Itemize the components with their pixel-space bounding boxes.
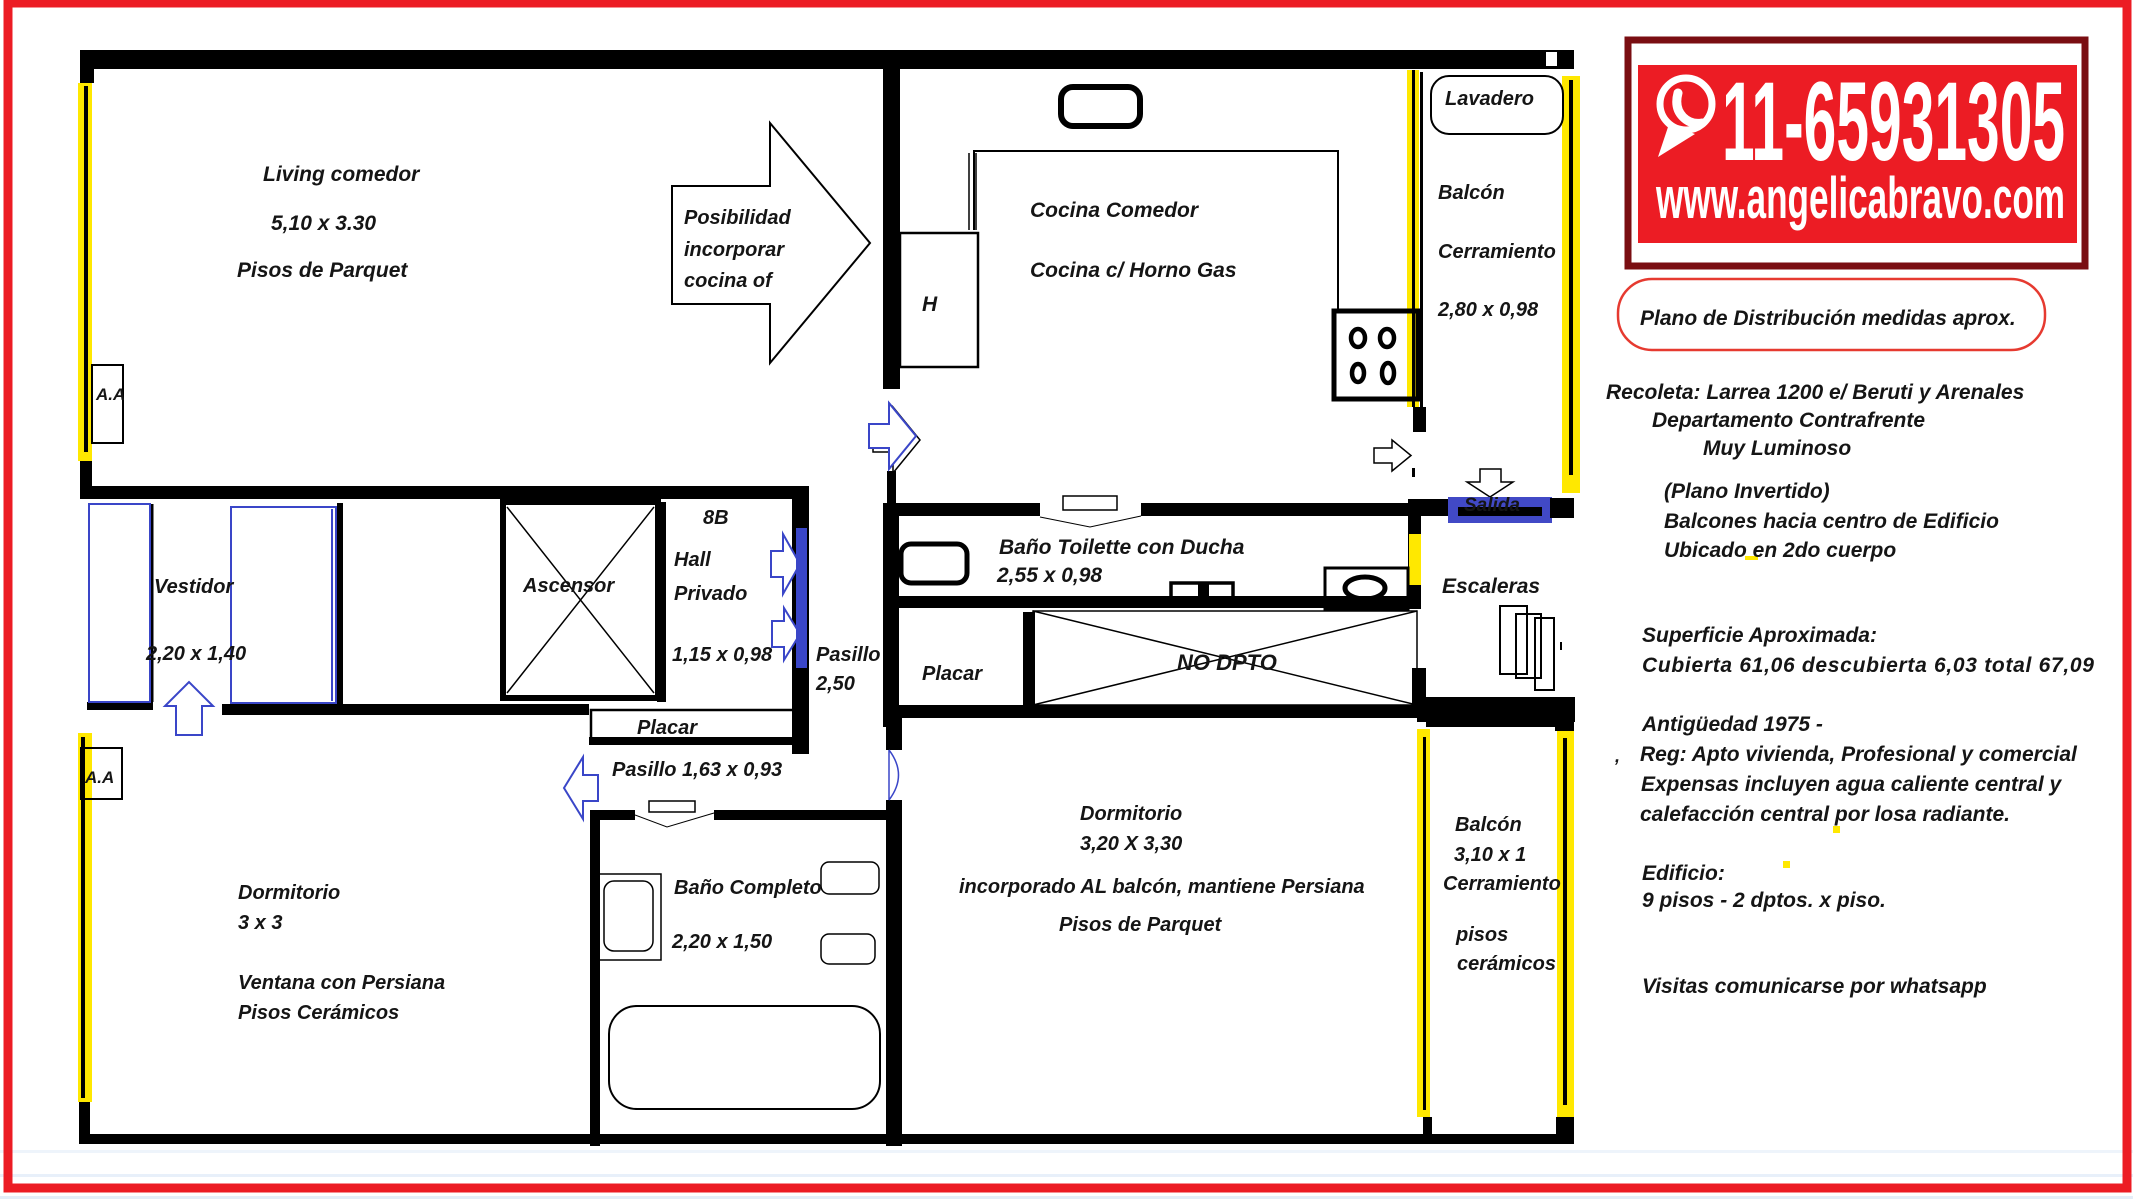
svg-text:Balcón: Balcón <box>1455 814 1522 836</box>
svg-text:incorporado AL balcón, mantien: incorporado AL balcón, mantiene Persiana <box>959 876 1365 898</box>
svg-text:cerámicos: cerámicos <box>1457 953 1556 975</box>
svg-text:Balcón: Balcón <box>1438 182 1505 204</box>
svg-text:Lavadero: Lavadero <box>1445 88 1534 110</box>
svg-text:2,20 x 1,50: 2,20 x 1,50 <box>671 931 772 953</box>
svg-text:Baño Toilette con Ducha: Baño Toilette con Ducha <box>999 536 1245 559</box>
svg-text:Privado: Privado <box>674 583 747 605</box>
svg-text:,: , <box>1614 746 1620 766</box>
svg-text:Pisos de Parquet: Pisos de Parquet <box>1059 914 1223 936</box>
svg-text:1,15 x 0,98: 1,15 x 0,98 <box>672 644 773 666</box>
svg-text:Vestidor: Vestidor <box>154 576 234 598</box>
svg-text:3,20 X 3,30: 3,20 X 3,30 <box>1080 833 1182 855</box>
svg-text:3 x 3: 3 x 3 <box>238 912 282 934</box>
svg-text:2,20 x 1,40: 2,20 x 1,40 <box>145 643 246 665</box>
svg-text:Escaleras: Escaleras <box>1442 575 1540 598</box>
svg-text:11-65931305: 11-65931305 <box>1722 59 2065 184</box>
svg-text:Antigüedad 1975 -: Antigüedad 1975 - <box>1641 713 1823 736</box>
svg-text:Balcones hacia centro de Edifi: Balcones hacia centro de Edificio <box>1664 510 1999 533</box>
svg-text:Expensas incluyen agua calient: Expensas incluyen agua caliente central … <box>1641 773 2063 796</box>
svg-text:Visitas comunicarse por whatsa: Visitas comunicarse por whatsapp <box>1642 975 1987 998</box>
svg-text:A.A: A.A <box>95 385 125 404</box>
svg-text:Ubicado en 2do cuerpo: Ubicado en 2do cuerpo <box>1664 539 1896 562</box>
svg-text:Cocina Comedor: Cocina Comedor <box>1030 199 1200 222</box>
svg-text:Pisos Cerámicos: Pisos Cerámicos <box>238 1002 399 1024</box>
svg-text:5,10 x 3.30: 5,10 x 3.30 <box>271 212 376 235</box>
svg-text:2,55 x 0,98: 2,55 x 0,98 <box>996 564 1102 587</box>
svg-text:Superficie Aproximada:: Superficie Aproximada: <box>1642 624 1877 647</box>
svg-text:Departamento Contrafrente: Departamento Contrafrente <box>1652 409 1925 432</box>
svg-text:Cubierta 61,06 descubierta 6,0: Cubierta 61,06 descubierta 6,03 total 67… <box>1642 654 2095 677</box>
svg-text:Recoleta: Larrea 1200 e/ Berut: Recoleta: Larrea 1200 e/ Beruti y Arenal… <box>1606 381 2024 404</box>
svg-text:2,80 x 0,98: 2,80 x 0,98 <box>1437 299 1539 321</box>
svg-text:Pasillo: Pasillo <box>816 644 880 666</box>
svg-text:3,10 x 1: 3,10 x 1 <box>1454 844 1526 866</box>
svg-text:NO DPTO: NO DPTO <box>1177 650 1277 675</box>
svg-text:H: H <box>922 293 938 316</box>
svg-text:incorporar: incorporar <box>684 239 785 261</box>
svg-text:Placar: Placar <box>637 717 698 739</box>
svg-text:Living comedor: Living comedor <box>263 163 421 186</box>
svg-text:Ascensor: Ascensor <box>522 575 615 597</box>
svg-text:Posibilidad: Posibilidad <box>684 207 791 229</box>
svg-text:Salida: Salida <box>1464 495 1520 516</box>
svg-text:Ventana con Persiana: Ventana con Persiana <box>238 972 445 994</box>
svg-text:Pisos de Parquet: Pisos de Parquet <box>237 259 408 282</box>
svg-text:Cerramiento: Cerramiento <box>1443 873 1561 895</box>
svg-text:calefacción central por losa r: calefacción central por losa radiante. <box>1640 803 2010 826</box>
svg-text:A.A: A.A <box>84 768 114 787</box>
svg-text:www.angelicabravo.com: www.angelicabravo.com <box>1655 167 2065 231</box>
svg-text:Hall: Hall <box>674 549 711 571</box>
svg-text:Pasillo 1,63 x 0,93: Pasillo 1,63 x 0,93 <box>612 759 782 781</box>
svg-text:8B: 8B <box>703 507 729 529</box>
svg-text:Plano de Distribución medidas: Plano de Distribución medidas aprox. <box>1640 307 2016 330</box>
svg-text:Dormitorio: Dormitorio <box>238 882 340 904</box>
svg-text:Cerramiento: Cerramiento <box>1438 241 1556 263</box>
svg-text:cocina of: cocina of <box>684 270 774 292</box>
svg-text:Baño Completo: Baño Completo <box>674 877 822 899</box>
svg-text:Dormitorio: Dormitorio <box>1080 803 1182 825</box>
svg-text:(Plano Invertido): (Plano Invertido) <box>1664 480 1830 503</box>
svg-text:2,50: 2,50 <box>815 673 855 695</box>
svg-text:Cocina c/ Horno Gas: Cocina c/ Horno Gas <box>1030 259 1237 282</box>
svg-text:pisos: pisos <box>1455 924 1508 946</box>
svg-text:Placar: Placar <box>922 663 983 685</box>
svg-text:Muy Luminoso: Muy Luminoso <box>1703 437 1851 460</box>
svg-text:Reg: Apto vivienda, Profesiona: Reg: Apto vivienda, Profesional y comerc… <box>1640 743 2078 766</box>
svg-text:9 pisos - 2 dptos. x piso.: 9 pisos - 2 dptos. x piso. <box>1642 889 1886 912</box>
svg-text:Edificio:: Edificio: <box>1642 862 1725 885</box>
